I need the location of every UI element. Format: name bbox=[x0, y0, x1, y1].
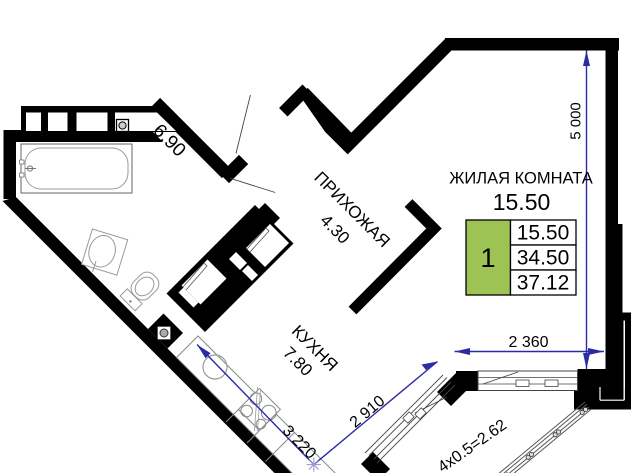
svg-text:34.50: 34.50 bbox=[517, 247, 570, 270]
svg-text:5 000: 5 000 bbox=[568, 102, 585, 140]
svg-text:2 360: 2 360 bbox=[508, 334, 548, 351]
svg-text:1: 1 bbox=[480, 243, 495, 273]
svg-text:ЖИЛАЯ КОМНАТА: ЖИЛАЯ КОМНАТА bbox=[449, 170, 593, 188]
svg-text:37.12: 37.12 bbox=[517, 272, 570, 295]
svg-text:15.50: 15.50 bbox=[517, 222, 570, 245]
svg-text:15.50: 15.50 bbox=[493, 189, 551, 215]
